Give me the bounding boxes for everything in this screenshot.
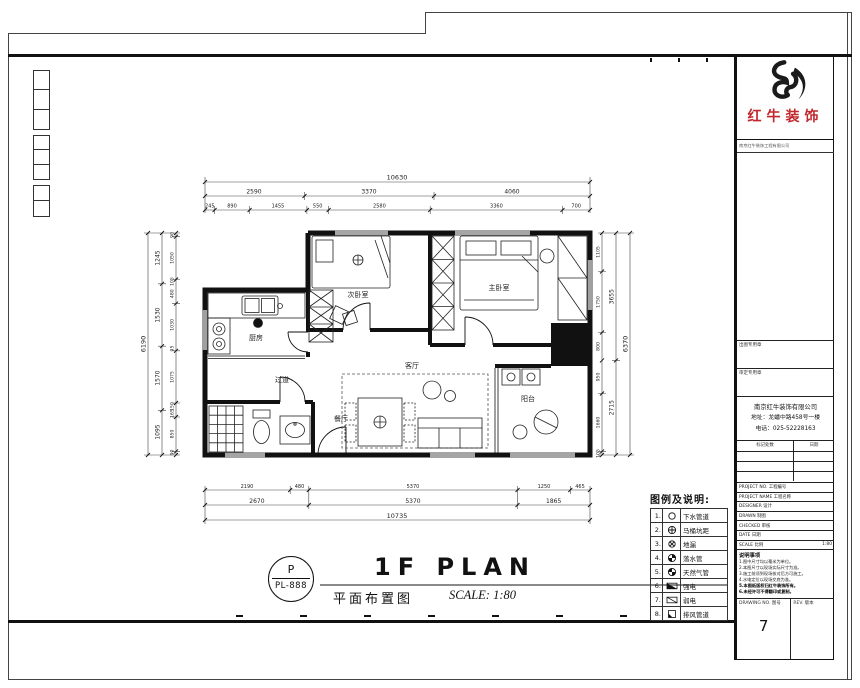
dim-left: 6190 1245 1530 1570 1095 90 1050 105 480…: [140, 232, 176, 455]
revision-row: [737, 451, 834, 461]
dim-value: 10630: [387, 174, 408, 182]
dining-light: [374, 416, 386, 428]
ceiling-light: [353, 255, 363, 265]
field-label: CHECKED 审核: [739, 523, 770, 529]
field-value: 1:80: [822, 542, 832, 547]
fold-dash: [236, 615, 243, 617]
dryer: [522, 369, 540, 385]
strip-cell: [33, 135, 50, 150]
dim-value: 1750: [596, 296, 602, 308]
master-door: [465, 317, 493, 345]
dim-value: 95: [170, 346, 176, 352]
hongniu-bull-logo: [756, 57, 816, 103]
dim-value: 3360: [490, 204, 503, 210]
legend-no: 8.: [651, 610, 662, 618]
legend-row: 8. 排风管道: [651, 607, 727, 621]
field-row: DESIGNER 设计: [737, 501, 834, 511]
dim-value: 5370: [407, 484, 420, 490]
dim-value: 2580: [373, 204, 386, 210]
dim-value: 480: [295, 484, 305, 490]
dim-value: 1030: [170, 319, 176, 331]
kitchen-fixture: [254, 319, 263, 328]
exhaust-duct-icon: [662, 607, 681, 620]
frame-bottom-line: [8, 679, 852, 680]
dim-top: 10630 2590 3370 4060 245 890 1455 550 25…: [205, 174, 581, 210]
dim-value: 1530: [155, 307, 162, 322]
drawing-sheet: 10630 2590 3370 4060 245 890 1455 550 25…: [0, 0, 860, 688]
pillow: [466, 241, 496, 255]
dim-value: 4060: [504, 189, 519, 196]
drawing-stamp: P PL-888: [268, 556, 314, 602]
dim-value: 1245: [155, 250, 162, 265]
dim-value: 1075: [170, 371, 176, 383]
strip-cell: [33, 70, 50, 90]
frame-left-line: [8, 33, 9, 680]
toilet-rough-in-icon: [662, 523, 681, 536]
room-label-dining: 餐厅: [334, 414, 348, 423]
dim-value: 3370: [361, 189, 376, 196]
legend-label: 马桶坑距: [681, 525, 727, 535]
dim-value: 1570: [155, 370, 162, 385]
field-row: DATE 日期: [737, 530, 834, 540]
legend-label: 强电: [681, 581, 727, 591]
dim-value: 3655: [609, 289, 616, 304]
revision-row: [737, 471, 834, 481]
frame-right-line: [851, 12, 852, 680]
stamp-code: PL-888: [269, 581, 313, 591]
room-label-master: 主卧室: [489, 283, 510, 292]
legend-no: 5.: [651, 568, 662, 576]
notes-title: 说明事项: [737, 550, 834, 559]
drawing-no-label: DRAWING NO. 图号: [737, 599, 790, 607]
legend-no: 4.: [651, 554, 662, 562]
kitchen-counter-top: [208, 293, 305, 318]
revision-header-right: 日期: [794, 441, 834, 451]
legend-row: 3. 地漏: [651, 537, 727, 551]
sheet-title-en: 1F PLAN: [374, 553, 536, 581]
stool: [540, 249, 554, 263]
field-row: CHECKED 审核: [737, 520, 834, 530]
balcony-table: [513, 425, 527, 439]
legend-no: 1.: [651, 512, 662, 520]
dim-value: 5370: [405, 498, 420, 505]
notes-cell: 说明事项 1.图中尺寸均以毫米为单位。 2.本图尺寸以现场实际尺寸为准。 3.施…: [737, 549, 834, 598]
dim-value: 465: [575, 484, 585, 490]
kitchen-sink: [242, 296, 283, 315]
frame-top-step-line: [425, 12, 426, 34]
shower-area: [209, 406, 243, 452]
legend-label: 弱电: [681, 595, 727, 605]
note-line: 6.未经许可不得翻印或复制。: [737, 589, 834, 595]
strip-cell: [33, 90, 50, 110]
strip-cell: [33, 110, 50, 130]
legend: 图例及说明: 1. 下水管道 2. 马桶坑距 3. 地漏 4. 落水管: [650, 491, 728, 621]
fold-dash: [492, 615, 499, 617]
dim-value: 10735: [387, 512, 408, 520]
washer: [502, 369, 520, 385]
bed-double: [460, 236, 538, 310]
brand-name: 红牛装饰: [737, 106, 834, 126]
field-label: DRAWN 制图: [739, 513, 766, 519]
dim-value: 2670: [249, 498, 264, 505]
toilet: [253, 410, 270, 444]
seal-box-label: 审定专用章: [737, 369, 834, 377]
field-row: DRAWN 制图: [737, 511, 834, 521]
company-address: 地址：龙蟠中路458号一楼: [737, 413, 834, 423]
legend-label: 天然气管: [681, 567, 727, 577]
field-row: SCALE 比例1:80: [737, 540, 834, 550]
strong-electric-icon: [662, 579, 681, 592]
fold-dash: [428, 615, 435, 617]
dim-value: 1095: [155, 424, 162, 439]
wardrobe-bedroom2: [309, 290, 333, 342]
title-block: 红牛装饰 南京红牛装饰工程有限公司 出图专用章 审定专用章 南京红牛装饰有限公司…: [737, 54, 834, 660]
legend-row: 6. 强电: [651, 579, 727, 593]
legend-title: 图例及说明:: [650, 491, 728, 508]
weak-electric-icon: [662, 593, 681, 606]
revision-header: 标记处数 日期: [737, 441, 834, 451]
rev-label: REV. 版本: [791, 599, 834, 607]
dim-value: 245: [205, 204, 215, 210]
field-rows: PROJECT NO. 工程编号 PROJECT NAME 工程名称 DESIG…: [737, 482, 834, 549]
downspout-icon: [662, 551, 681, 564]
frame-top-right-line: [425, 12, 852, 13]
dim-value: 1250: [538, 484, 551, 490]
room-label-bedroom2: 次卧室: [348, 290, 369, 299]
company-phone: 电话：025-52228163: [737, 424, 834, 434]
legend-row: 4. 落水管: [651, 551, 727, 565]
legend-label: 下水管道: [681, 511, 727, 521]
strip-cell: [33, 185, 50, 201]
room-label-balcony: 阳台: [521, 394, 535, 403]
fold-dash: [620, 615, 627, 617]
pillow: [501, 241, 531, 255]
dim-value: 90: [170, 232, 176, 238]
field-row: PROJECT NAME 工程名称: [737, 492, 834, 502]
sheet-title-cn: 平面布置图: [333, 588, 413, 607]
shaft-column: [551, 323, 590, 366]
room-label-hall: 过道: [275, 375, 289, 384]
dim-value: 165: [170, 409, 176, 418]
sofa: [418, 418, 482, 448]
legend-row: 7. 弱电: [651, 593, 727, 607]
legend-label: 排风管道: [681, 609, 727, 619]
dim-value: 890: [227, 204, 237, 210]
washbasin: [280, 416, 310, 444]
dim-value: 2190: [241, 484, 254, 490]
dim-value: 6370: [622, 336, 630, 353]
legend-row: 5. 天然气管: [651, 565, 727, 579]
field-label: SCALE 比例: [739, 542, 763, 548]
dim-value: 1105: [596, 246, 602, 258]
stamp-letter: P: [269, 563, 313, 576]
frame-top-left-line: [8, 33, 425, 34]
field-label: PROJECT NAME 工程名称: [739, 494, 791, 500]
dim-value: 105: [596, 449, 602, 458]
seal-box-1: 出图专用章: [737, 340, 834, 368]
dim-value: 105: [170, 277, 176, 286]
dim-value: 2590: [246, 189, 261, 196]
coffee-table-small: [445, 391, 456, 402]
room-labels: 厨房 次卧室 主卧室 过道 餐厅 客厅 阳台: [249, 283, 535, 423]
field-label: PROJECT NO. 工程编号: [739, 484, 786, 490]
wardrobe-master: [432, 236, 454, 330]
dim-value: 550: [313, 204, 323, 210]
legend-no: 6.: [651, 582, 662, 590]
fold-tick: [650, 58, 652, 62]
legend-no: 3.: [651, 540, 662, 548]
legend-label: 落水管: [681, 553, 727, 563]
drawing-number-cell: DRAWING NO. 图号 7 REV. 版本: [737, 598, 834, 660]
legend-no: 2.: [651, 526, 662, 534]
field-label: DATE 日期: [739, 532, 761, 538]
fold-dash: [300, 615, 307, 617]
revision-header-left: 标记处数: [737, 441, 794, 451]
strip-cell: [33, 150, 50, 165]
dim-value: 950: [596, 373, 602, 382]
dim-right: 1105 1750 800 950 1660 105 3655 2715 637…: [596, 246, 630, 458]
dim-value: 6190: [140, 336, 148, 353]
dim-value: 1455: [272, 204, 285, 210]
brand-reg-line: 南京红牛装饰工程有限公司: [737, 141, 834, 153]
legend-no: 7.: [651, 596, 662, 604]
floor-plan-canvas: 10630 2590 3370 4060 245 890 1455 550 25…: [130, 160, 650, 550]
revision-row: [737, 461, 834, 471]
closet-hatched: [558, 236, 587, 320]
kitchen-door: [288, 332, 308, 352]
field-label: DESIGNER 设计: [739, 503, 772, 509]
balcony-chair: [534, 410, 558, 434]
decor: [330, 306, 349, 325]
dim-value: 1660: [596, 417, 602, 429]
strip-cell: [33, 201, 50, 217]
company-name: 南京红牛装饰有限公司: [737, 402, 834, 413]
page-number: 7: [737, 617, 790, 635]
coffee-table: [423, 381, 441, 399]
strip-cell: [33, 165, 50, 180]
dim-value: 1050: [170, 252, 176, 264]
dim-value: 850: [170, 430, 176, 439]
dim-value: 800: [596, 342, 602, 351]
fold-dash: [364, 615, 371, 617]
revision-table: 标记处数 日期: [737, 440, 834, 481]
room-label-kitchen: 厨房: [249, 333, 263, 342]
dim-value: 1865: [546, 498, 561, 505]
room-label-living: 客厅: [405, 361, 419, 370]
field-row: PROJECT NO. 工程编号: [737, 482, 834, 492]
company-info-cell: 南京红牛装饰有限公司 地址：龙蟠中路458号一楼 电话：025-52228163: [737, 396, 834, 440]
legend-row: 2. 马桶坑距: [651, 523, 727, 537]
logo-cell: 红牛装饰: [737, 54, 834, 140]
fold-dash: [556, 615, 563, 617]
left-fold-strip: [33, 70, 50, 217]
scale-note: SCALE: 1:80: [449, 588, 516, 603]
decor: [342, 310, 357, 325]
border-bottom-thick: [8, 620, 737, 623]
dim-value: 2715: [609, 400, 616, 415]
fold-tick: [706, 58, 708, 62]
border-top-thick: [8, 54, 852, 57]
stamp-divider: [272, 578, 310, 579]
pillow: [316, 240, 333, 262]
bedroom2-door: [343, 303, 370, 330]
legend-label: 地漏: [681, 539, 727, 549]
floor-drain-icon: [662, 537, 681, 550]
seal-box-label: 出图专用章: [737, 341, 834, 349]
legend-row: 1. 下水管道: [651, 509, 727, 523]
dim-value: 90: [170, 450, 176, 456]
frame-inner-right-line: [847, 12, 848, 680]
seal-box-2: 审定专用章: [737, 368, 834, 396]
dim-bottom: 2190 480 5370 1250 465 2670 5370 1865 10…: [241, 484, 585, 520]
drain-pipe-icon: [662, 509, 681, 522]
gas-pipe-icon: [662, 565, 681, 578]
stove: [213, 323, 225, 350]
dim-value: 480: [170, 289, 176, 298]
dim-value: 700: [571, 204, 581, 210]
fold-tick: [678, 58, 680, 62]
